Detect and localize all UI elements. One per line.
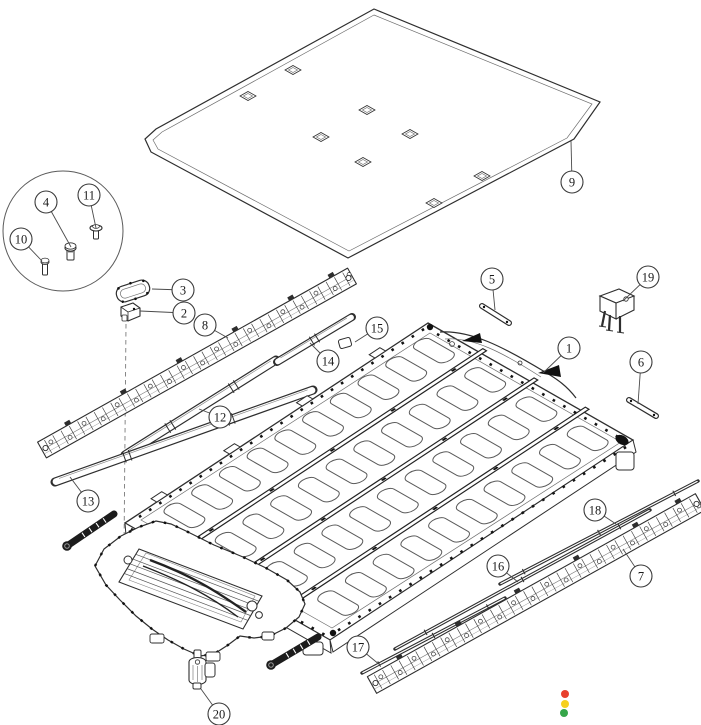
sill-hole [597, 559, 601, 563]
sill-hole [300, 305, 304, 309]
callout-15: 15 [355, 317, 388, 342]
sill-hole [664, 522, 668, 526]
sill-mount-tab [634, 523, 636, 526]
callout-11: 11 [78, 184, 100, 228]
strip-part-6 [629, 400, 656, 416]
gasket-part-3 [114, 277, 152, 306]
callout-3: 3 [152, 279, 194, 301]
sill-hole [201, 361, 205, 365]
clip-part-2 [121, 303, 140, 321]
callout-number: 8 [202, 318, 208, 332]
tray-foot-right [616, 452, 634, 470]
callout-number: 15 [371, 321, 384, 335]
assembly-dashed-line [124, 324, 126, 548]
sill-hole [234, 342, 238, 346]
sill-hole [248, 328, 252, 332]
sill-hole [333, 287, 337, 291]
sill-hole [101, 417, 105, 421]
callout-2: 2 [140, 302, 195, 324]
callout-number: 19 [642, 270, 655, 284]
callout-10: 10 [10, 228, 42, 261]
sill-hole [398, 671, 402, 675]
status-indicator-dots [560, 690, 569, 717]
sill-hole [445, 638, 449, 642]
sill-hole [465, 634, 469, 638]
callout-5: 5 [481, 268, 503, 310]
spacer-part-15 [338, 337, 352, 349]
sill-hole [314, 291, 318, 295]
sill-hole [564, 578, 568, 582]
callout-8: 8 [194, 314, 228, 338]
sill-hole [68, 435, 72, 439]
status-dot-0 [561, 690, 569, 698]
cover-rivet-mark [313, 133, 329, 142]
cover-rivet-mark [359, 106, 375, 115]
status-dot-2 [560, 709, 568, 717]
cover-rivet-mark [285, 66, 301, 75]
callout-number: 10 [15, 232, 28, 246]
callout-number: 9 [569, 175, 575, 189]
callout-number: 14 [322, 354, 335, 368]
module-bolt-left [62, 512, 115, 550]
sill-hole [677, 508, 681, 512]
callout-18: 18 [584, 499, 616, 524]
callout-4: 4 [35, 191, 71, 247]
sill-mount-tab [457, 622, 459, 625]
sill-hole [82, 421, 86, 425]
callout-number: 1 [566, 341, 572, 355]
module-foot-2 [206, 652, 220, 661]
sill-hole [148, 384, 152, 388]
callout-7: 7 [623, 549, 652, 587]
sill-hole [412, 656, 416, 660]
callout-number: 5 [489, 272, 495, 286]
callout-number: 11 [83, 188, 95, 202]
callout-6: 6 [630, 351, 652, 404]
callout-14: 14 [310, 343, 339, 372]
sill-hole [215, 347, 219, 351]
cover-rivet-mark [240, 92, 256, 101]
sill-hole [644, 527, 648, 531]
sill-hole [115, 403, 119, 407]
sill-mount-tab [178, 359, 180, 362]
callout-number: 16 [492, 559, 505, 573]
sill-mount-tab [677, 499, 679, 502]
callout-number: 18 [589, 503, 602, 517]
sill-hole [281, 310, 285, 314]
callout-number: 20 [213, 707, 226, 721]
callout-19: 19 [623, 266, 659, 301]
callout-number: 17 [352, 640, 365, 654]
callout-number: 12 [214, 410, 227, 424]
sill-hole [531, 596, 535, 600]
cover-rivet-mark [426, 199, 442, 208]
cover-rivet-marks [240, 66, 490, 208]
callout-number: 13 [82, 494, 95, 508]
sill-hole [630, 541, 634, 545]
sill-hole [181, 366, 185, 370]
sill-hole [431, 652, 435, 656]
callout-number: 4 [43, 195, 50, 209]
module-port-1 [247, 601, 257, 611]
bracket-part-5 [482, 306, 509, 323]
callout-9: 9 [561, 141, 583, 193]
sill-hole [545, 582, 549, 586]
tray-corner-cap-top [427, 324, 433, 330]
sill-mount-tab [67, 421, 69, 424]
callout-number: 7 [638, 569, 644, 583]
sill-mount-tab [575, 556, 577, 559]
sill-hole [267, 324, 271, 328]
top-cover-outer-edge [145, 9, 600, 258]
sill-hole [49, 440, 53, 444]
cover-rivet-mark [402, 130, 418, 139]
top-cover-panel [145, 9, 600, 258]
callout-16: 16 [487, 555, 518, 582]
top-cover-inner-edge [153, 15, 592, 251]
sill-mount-tab [516, 589, 518, 592]
diagram-stage: 1234567891011121314151617181920 [0, 0, 701, 725]
sill-hole [379, 675, 383, 679]
callout-1: 1 [543, 337, 580, 373]
module-foot-3 [262, 632, 274, 640]
status-dot-1 [561, 700, 569, 708]
tray-corner-cap-bottom [330, 630, 336, 636]
exploded-view-diagram: 1234567891011121314151617181920 [0, 0, 701, 725]
sill-hole [134, 398, 138, 402]
sill-hole [168, 380, 172, 384]
module-port-2 [256, 612, 263, 619]
sill-hole [578, 564, 582, 568]
sill-mount-tab [234, 327, 236, 330]
callout-number: 6 [638, 355, 644, 369]
sill-mount-tab [290, 296, 292, 299]
callout-number: 2 [181, 306, 187, 320]
sill-mount-tab [330, 273, 332, 276]
callout-number: 3 [180, 283, 186, 297]
cover-rivet-mark [355, 158, 371, 167]
module-port-3 [124, 556, 132, 564]
module-foot-1 [150, 634, 164, 643]
sill-mount-tab [122, 390, 124, 393]
sill-hole [512, 601, 516, 605]
sill-mount-tab [398, 655, 400, 658]
callout-20: 20 [201, 689, 230, 725]
callout-13: 13 [70, 477, 99, 512]
callout-17: 17 [347, 636, 380, 665]
sill-hole [498, 615, 502, 619]
sill-hole [611, 545, 615, 549]
sill-hole [478, 619, 482, 623]
